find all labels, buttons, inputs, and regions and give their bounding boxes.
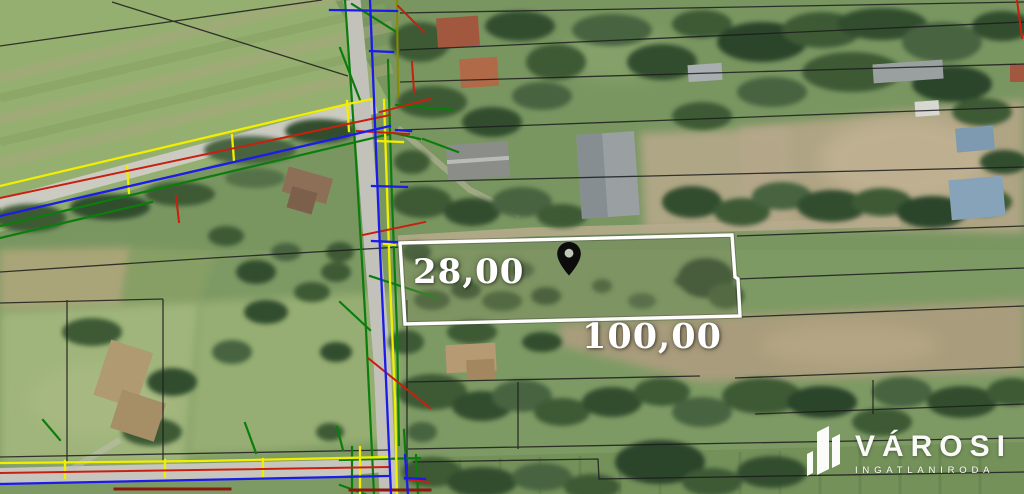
property-aerial-map: 28,00 100,00 VÁROSI INGATLANIRODA: [0, 0, 1024, 494]
location-pin-icon: [555, 241, 583, 282]
logo-tagline: INGATLANIRODA: [855, 466, 994, 476]
parcel-width-label: 28,00: [413, 255, 524, 289]
varosi-logo: VÁROSI INGATLANIRODA: [807, 425, 1012, 482]
buildings-icon: [807, 425, 843, 482]
parcel-length-label: 100,00: [582, 319, 722, 354]
logo-name: VÁROSI: [855, 432, 1012, 462]
aerial-map-image: [0, 0, 1024, 494]
